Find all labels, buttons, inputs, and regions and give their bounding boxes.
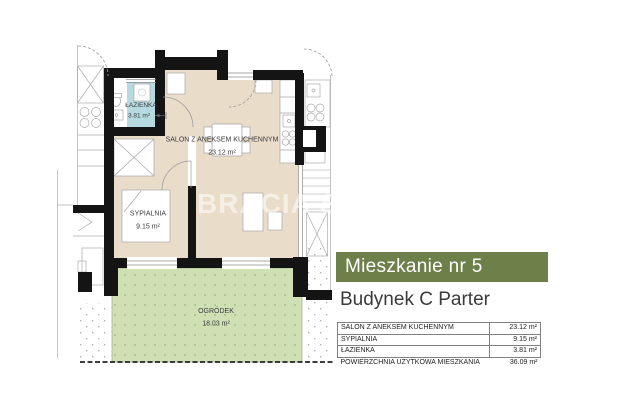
neighbor-door-arc [304, 49, 332, 77]
label-lazienka: ŁAZIENKA [125, 102, 157, 109]
area-table: SALON Z ANEKSEM KUCHENNYM 23.12 m² SYPIA… [337, 322, 541, 368]
wall-segment [104, 268, 118, 296]
label-ogrodek: OGRÓDEK [198, 306, 234, 315]
room-area-cell: 9.15 m² [490, 334, 541, 346]
wall-segment [73, 205, 105, 213]
table-row-total: POWIERZCHNIA UŻYTKOWA MIESZKANIA 36.09 m… [338, 357, 541, 368]
label-salon-area: 23.12 m² [208, 150, 236, 157]
table-row: SALON Z ANEKSEM KUCHENNYM 23.12 m² [338, 323, 541, 335]
room-name-cell: SYPIALNIA [338, 334, 490, 346]
entrance-opening [228, 70, 253, 80]
screenshot-canvas: ŁAZIENKA 3.81 m² SALON Z ANEKSEM KUCHENN… [0, 0, 620, 400]
hall-cabinet [167, 73, 185, 94]
label-sypialnia: SYPIALNIA [130, 211, 167, 218]
washing-machine [134, 84, 150, 101]
wall-segment [104, 127, 165, 136]
wall-segment [217, 50, 228, 80]
table-row: ŁAZIENKA 3.81 m² [338, 346, 541, 358]
wall-segment [165, 57, 220, 70]
salon-garden-door [222, 257, 270, 269]
total-name-cell: POWIERZCHNIA UŻYTKOWA MIESZKANIA [338, 357, 490, 368]
room-name-cell: ŁAZIENKA [338, 346, 490, 358]
kitchen-cabinet [255, 80, 272, 93]
kitchen-sink [283, 115, 295, 127]
wall-segment [293, 257, 308, 297]
neighbor-door-swing [78, 213, 92, 231]
chair [242, 142, 250, 153]
room-area-cell: 23.12 m² [490, 323, 541, 335]
total-area-cell: 36.09 m² [490, 357, 541, 368]
label-ogrodek-area: 18.03 m² [202, 321, 230, 328]
apartment-info-panel: Mieszkanie nr 5 Budynek C Parter SALON Z… [336, 252, 548, 282]
table-row: SYPIALNIA 9.15 m² [338, 334, 541, 346]
wall-segment [306, 290, 332, 300]
apartment-title-bar: Mieszkanie nr 5 [336, 252, 548, 282]
label-lazienka-area: 3.81 m² [128, 113, 151, 120]
wall-segment [104, 68, 114, 268]
apartment-title: Mieszkanie nr 5 [345, 256, 483, 277]
label-sypialnia-area: 9.15 m² [136, 224, 160, 231]
wall-segment [155, 50, 165, 136]
bedroom-window [127, 257, 177, 269]
wall-segment [188, 186, 196, 258]
building-subtitle: Budynek C Parter [340, 289, 490, 311]
label-salon: SALON Z ANEKSEM KUCHENNYM [166, 137, 279, 144]
ogrodek-dot-texture [112, 268, 302, 362]
room-area-cell: 3.81 m² [490, 346, 541, 358]
neighbor-stove-burner [80, 108, 89, 117]
wall-segment [78, 272, 92, 292]
watermark: BRACIA S [197, 188, 339, 219]
room-name-cell: SALON Z ANEKSEM KUCHENNYM [338, 323, 490, 335]
